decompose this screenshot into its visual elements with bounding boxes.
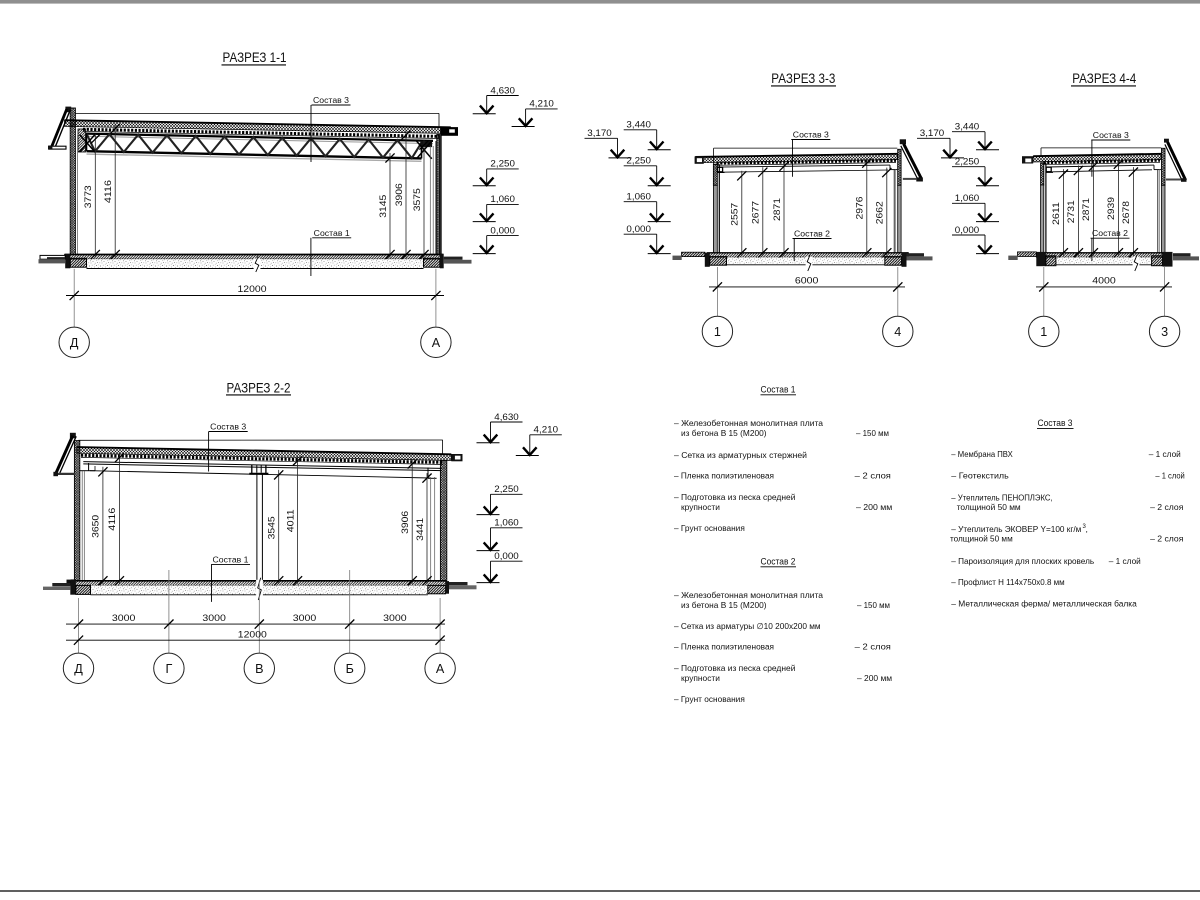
svg-text:Состав 3: Состав 3 xyxy=(793,130,829,140)
svg-text:Состав 3: Состав 3 xyxy=(210,422,246,432)
svg-text:3650: 3650 xyxy=(91,515,101,538)
svg-text:3575: 3575 xyxy=(412,188,422,211)
svg-text:Состав 2: Состав 2 xyxy=(794,229,830,239)
svg-text:Состав 1: Состав 1 xyxy=(213,555,249,565)
svg-text:Состав 3: Состав 3 xyxy=(1038,418,1073,428)
svg-text:Состав 1: Состав 1 xyxy=(314,228,350,238)
svg-text:– Железобетонная монолитная п: – Железобетонная монолитная плита xyxy=(674,590,823,600)
svg-text:– 1 слой: – 1 слой xyxy=(1155,471,1185,481)
svg-text:Состав 2: Состав 2 xyxy=(761,556,796,566)
svg-text:12000: 12000 xyxy=(238,629,267,639)
svg-text:– Пароизоляция для плоских кро: – Пароизоляция для плоских кровель xyxy=(951,556,1094,566)
svg-text:2662: 2662 xyxy=(875,201,885,224)
svg-text:3000: 3000 xyxy=(383,613,407,623)
svg-text:0,000: 0,000 xyxy=(955,225,980,235)
svg-text:,: , xyxy=(1086,524,1088,534)
svg-text:3545: 3545 xyxy=(267,516,277,539)
svg-text:3000: 3000 xyxy=(112,613,136,623)
svg-text:4000: 4000 xyxy=(1092,275,1116,285)
svg-text:– Железобетонная монолитная п: – Железобетонная монолитная плита xyxy=(674,418,823,428)
svg-text:4,210: 4,210 xyxy=(534,425,559,435)
svg-text:4116: 4116 xyxy=(103,180,113,203)
svg-text:1,060: 1,060 xyxy=(494,518,519,528)
svg-text:1,060: 1,060 xyxy=(490,194,515,204)
svg-text:толщиной 50 мм: толщиной 50 мм xyxy=(957,502,1021,512)
svg-text:2,250: 2,250 xyxy=(490,159,515,169)
svg-text:толщиной 50 мм: толщиной 50 мм xyxy=(950,534,1013,544)
svg-text:– Утеплитель ПЕНОПЛЭКС,: – Утеплитель ПЕНОПЛЭКС, xyxy=(951,493,1052,503)
svg-text:– 200 мм: – 200 мм xyxy=(857,673,892,683)
svg-text:2677: 2677 xyxy=(751,201,761,224)
svg-text:3773: 3773 xyxy=(83,185,93,208)
svg-text:– Геотекстиль: – Геотекстиль xyxy=(951,471,1009,481)
svg-text:3906: 3906 xyxy=(400,511,410,534)
svg-text:2678: 2678 xyxy=(1121,201,1131,224)
svg-text:крупности: крупности xyxy=(681,502,720,512)
svg-text:3000: 3000 xyxy=(293,613,317,623)
svg-text:2871: 2871 xyxy=(772,198,782,221)
svg-text:– 1 слой: – 1 слой xyxy=(1149,449,1181,459)
svg-text:– Сетка из арматуры ∅10 200x20: – Сетка из арматуры ∅10 200x200 мм xyxy=(674,621,821,631)
svg-text:– Сетка из арматурных стержней: – Сетка из арматурных стержней xyxy=(674,450,807,460)
svg-text:3441: 3441 xyxy=(415,518,425,541)
svg-text:1,060: 1,060 xyxy=(955,193,980,203)
svg-text:Б: Б xyxy=(346,662,354,676)
svg-text:Д: Д xyxy=(74,662,83,676)
svg-text:4,630: 4,630 xyxy=(494,412,519,422)
svg-text:2939: 2939 xyxy=(1106,197,1116,220)
svg-text:Состав 3: Состав 3 xyxy=(313,95,349,105)
svg-text:– Грунт основания: – Грунт основания xyxy=(674,523,745,533)
svg-text:0,000: 0,000 xyxy=(490,225,515,235)
svg-text:3000: 3000 xyxy=(202,613,226,623)
svg-text:1: 1 xyxy=(714,325,721,339)
svg-text:– Профлист Н 114x750x0.8 мм: – Профлист Н 114x750x0.8 мм xyxy=(951,577,1064,587)
svg-text:1: 1 xyxy=(1040,325,1047,339)
svg-text:0,000: 0,000 xyxy=(626,224,651,234)
svg-text:– Пленка полиэтиленовая: – Пленка полиэтиленовая xyxy=(674,642,774,652)
svg-text:– Мембрана ПВХ: – Мембрана ПВХ xyxy=(951,449,1013,459)
svg-text:Состав 3: Состав 3 xyxy=(1093,130,1129,140)
svg-text:РАЗРЕЗ 1-1: РАЗРЕЗ 1-1 xyxy=(223,50,287,65)
svg-text:2731: 2731 xyxy=(1066,200,1076,223)
svg-text:РАЗРЕЗ 2-2: РАЗРЕЗ 2-2 xyxy=(227,380,291,395)
svg-text:2,250: 2,250 xyxy=(955,157,980,167)
svg-text:из бетона В 15 (М200): из бетона В 15 (М200) xyxy=(681,428,767,438)
svg-text:– 150 мм: – 150 мм xyxy=(857,600,890,610)
svg-text:2,250: 2,250 xyxy=(626,156,651,166)
svg-text:2976: 2976 xyxy=(855,196,865,219)
svg-text:1,060: 1,060 xyxy=(626,192,651,202)
svg-text:– 2 слоя: – 2 слоя xyxy=(1150,502,1184,512)
svg-text:Состав 2: Состав 2 xyxy=(1092,228,1128,238)
svg-text:– Подготовка из песка средней: – Подготовка из песка средней xyxy=(674,663,796,673)
svg-text:2,250: 2,250 xyxy=(494,484,519,494)
svg-text:– Утеплитель ЭКОВЕР Y=100 кг/м: – Утеплитель ЭКОВЕР Y=100 кг/м xyxy=(951,524,1081,534)
svg-text:4116: 4116 xyxy=(107,508,117,531)
svg-text:3,170: 3,170 xyxy=(587,128,612,138)
svg-text:3,170: 3,170 xyxy=(920,128,945,138)
svg-text:А: А xyxy=(436,662,445,676)
svg-text:Г: Г xyxy=(165,662,172,676)
svg-text:А: А xyxy=(432,336,441,350)
svg-text:3,440: 3,440 xyxy=(955,122,980,132)
svg-text:– Пленка полиэтиленовая: – Пленка полиэтиленовая xyxy=(674,471,774,481)
svg-text:– Подготовка из песка средней: – Подготовка из песка средней xyxy=(674,492,796,502)
svg-text:– Грунт основания: – Грунт основания xyxy=(674,694,745,704)
svg-text:РАЗРЕЗ 4-4: РАЗРЕЗ 4-4 xyxy=(1072,71,1136,86)
svg-text:3,440: 3,440 xyxy=(626,120,651,130)
svg-text:12000: 12000 xyxy=(238,284,267,294)
svg-text:– 2 слоя: – 2 слоя xyxy=(1150,534,1184,544)
svg-text:из бетона В 15 (М200): из бетона В 15 (М200) xyxy=(681,600,767,610)
svg-text:2611: 2611 xyxy=(1051,202,1061,225)
svg-text:– 1 слой: – 1 слой xyxy=(1109,556,1141,566)
svg-text:В: В xyxy=(255,662,263,676)
svg-text:3145: 3145 xyxy=(378,195,388,218)
svg-text:4: 4 xyxy=(894,325,901,339)
svg-text:0,000: 0,000 xyxy=(494,551,519,561)
svg-text:– 2 слоя: – 2 слоя xyxy=(855,471,892,481)
svg-text:4011: 4011 xyxy=(285,509,295,532)
svg-text:4,630: 4,630 xyxy=(490,85,515,95)
svg-text:– Металлическая ферма/ металли: – Металлическая ферма/ металлическая бал… xyxy=(951,599,1137,609)
svg-text:– 2 слоя: – 2 слоя xyxy=(855,642,892,652)
svg-text:Д: Д xyxy=(70,336,79,350)
svg-text:4,210: 4,210 xyxy=(529,99,554,109)
svg-text:6000: 6000 xyxy=(795,275,819,285)
svg-text:3: 3 xyxy=(1161,325,1168,339)
svg-text:РАЗРЕЗ 3-3: РАЗРЕЗ 3-3 xyxy=(771,71,835,86)
svg-text:Состав 1: Состав 1 xyxy=(761,385,796,395)
svg-text:2871: 2871 xyxy=(1081,198,1091,221)
svg-text:– 200 мм: – 200 мм xyxy=(856,502,892,512)
svg-text:– 150 мм: – 150 мм xyxy=(856,428,889,438)
svg-text:крупности: крупности xyxy=(681,673,720,683)
svg-text:2557: 2557 xyxy=(730,203,740,226)
svg-text:3906: 3906 xyxy=(394,183,404,206)
